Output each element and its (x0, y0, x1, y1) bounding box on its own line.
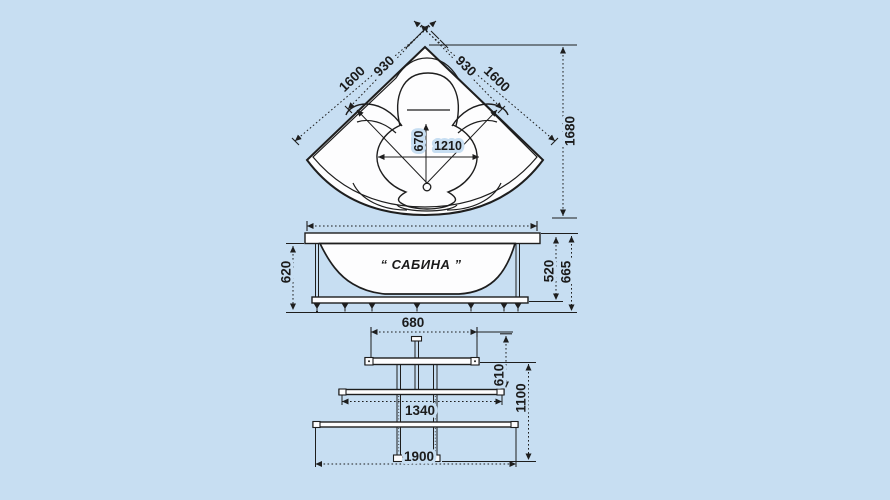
bar-end-cap (339, 389, 346, 395)
technical-drawing-canvas: 670 1210 1600 930 930 1600 1680 (0, 0, 890, 500)
tick (345, 106, 352, 113)
bolt-dot (474, 360, 476, 362)
foot (468, 303, 474, 312)
overall-height-label: 1680 (563, 116, 578, 146)
frame-bar (312, 297, 528, 303)
frame-height-label: 520 (542, 260, 557, 283)
edge-left-inner-label: 930 (371, 53, 398, 79)
tick (551, 138, 558, 145)
basin-depth-label: 670 (412, 131, 426, 152)
center-leg-cap (412, 337, 422, 342)
tick (406, 40, 414, 48)
middle-bar (339, 390, 504, 395)
foot (369, 303, 375, 312)
product-name-label: “ САБИНА ” (380, 257, 461, 272)
tick (440, 40, 448, 48)
top-view: 670 1210 1600 930 930 1600 1680 (292, 21, 578, 218)
foot (501, 303, 507, 312)
middle-bar-label: 1340 (405, 403, 435, 418)
bolt-dot (368, 360, 370, 362)
edge-left-outer-label: 1600 (336, 63, 368, 95)
tick (292, 138, 299, 145)
total-span-label: 1100 (514, 383, 529, 412)
bathtub-drawing-page: 670 1210 1600 930 930 1600 1680 (0, 0, 890, 500)
top-bar (365, 358, 479, 365)
apron-height-label: 620 (279, 261, 294, 284)
rim-bar (305, 233, 540, 244)
frame-view: 680 610 1100 1340 1900 (313, 315, 536, 467)
bar-end-cap (511, 422, 518, 428)
tick (431, 31, 439, 39)
foot (314, 303, 320, 312)
tick (415, 31, 423, 39)
upper-span-label: 610 (492, 364, 507, 387)
bar-end-cap (497, 389, 504, 395)
frame-feet (314, 303, 521, 312)
foot (342, 303, 348, 312)
bar-end-cap (313, 422, 320, 428)
edge-right-outer-label: 1600 (481, 63, 513, 95)
side-view: “ САБИНА ” 620 520 665 (279, 221, 579, 313)
bottom-bar-label: 1900 (404, 449, 434, 464)
drain-circle (423, 183, 431, 191)
rail-foot-cap (394, 455, 404, 462)
basin-width-label: 1210 (434, 139, 462, 153)
top-bar-label: 680 (402, 315, 425, 330)
foot (414, 303, 420, 312)
foot (515, 303, 521, 312)
total-height-label: 665 (559, 260, 574, 283)
bottom-bar (313, 422, 518, 427)
